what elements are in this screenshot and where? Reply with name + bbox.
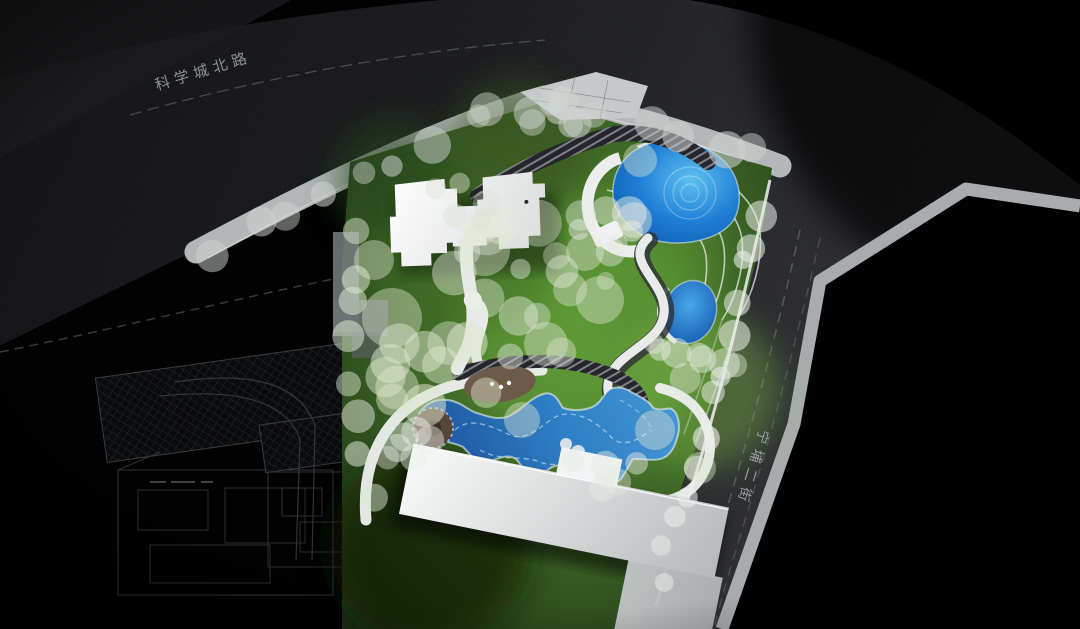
vignette	[0, 0, 1080, 629]
masterplan-canvas: 科学城北路 宁埔二街	[0, 0, 1080, 629]
site-plan-rendering: 科学城北路 宁埔二街	[0, 0, 1080, 629]
